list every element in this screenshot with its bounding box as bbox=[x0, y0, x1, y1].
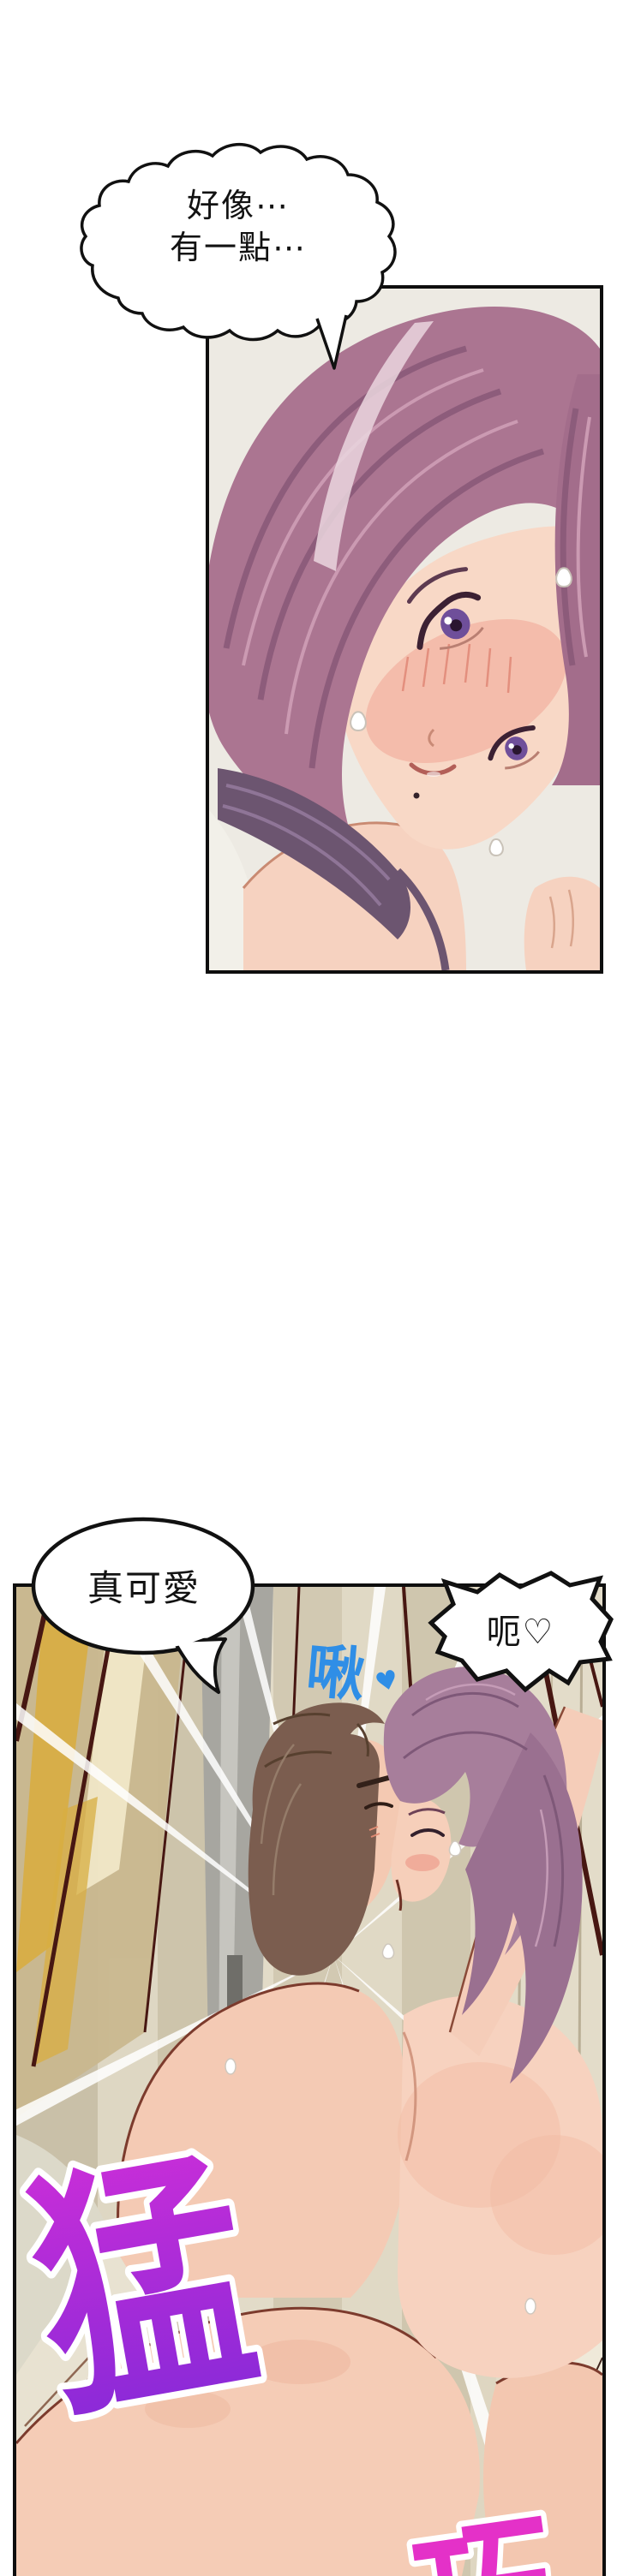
moan-speech-bubble: 呃♡ bbox=[424, 1570, 617, 1698]
cute-bubble-text: 真可愛 bbox=[32, 1565, 256, 1612]
chin-mole bbox=[414, 793, 420, 799]
comic-page: 好像⋯ 有一點⋯ 真可愛 呃♡ 啾 ♥ 猛 bbox=[0, 0, 617, 2576]
thought-bubble: 好像⋯ 有一點⋯ bbox=[67, 118, 403, 375]
sfx-fierce-text: 猛 bbox=[14, 2122, 273, 2454]
thought-line-1: 好像⋯ bbox=[118, 185, 358, 227]
sfx-partial-bottom: 巧 bbox=[390, 2484, 604, 2576]
moan-bubble-text: 呃♡ bbox=[424, 1611, 617, 1655]
sfx-kiss: 啾 bbox=[303, 1623, 368, 1713]
panel-face-closeup bbox=[206, 285, 603, 974]
thought-line-2: 有一點⋯ bbox=[118, 227, 358, 269]
cute-bubble-tail bbox=[174, 1639, 225, 1692]
thought-bubble-tail bbox=[317, 315, 346, 368]
hand bbox=[524, 877, 600, 970]
sfx-fierce: 猛 bbox=[15, 2151, 298, 2460]
face-artwork bbox=[209, 289, 600, 970]
cute-speech-bubble: 真可愛 bbox=[28, 1514, 260, 1702]
sfx-partial-text: 巧 bbox=[404, 2495, 567, 2576]
